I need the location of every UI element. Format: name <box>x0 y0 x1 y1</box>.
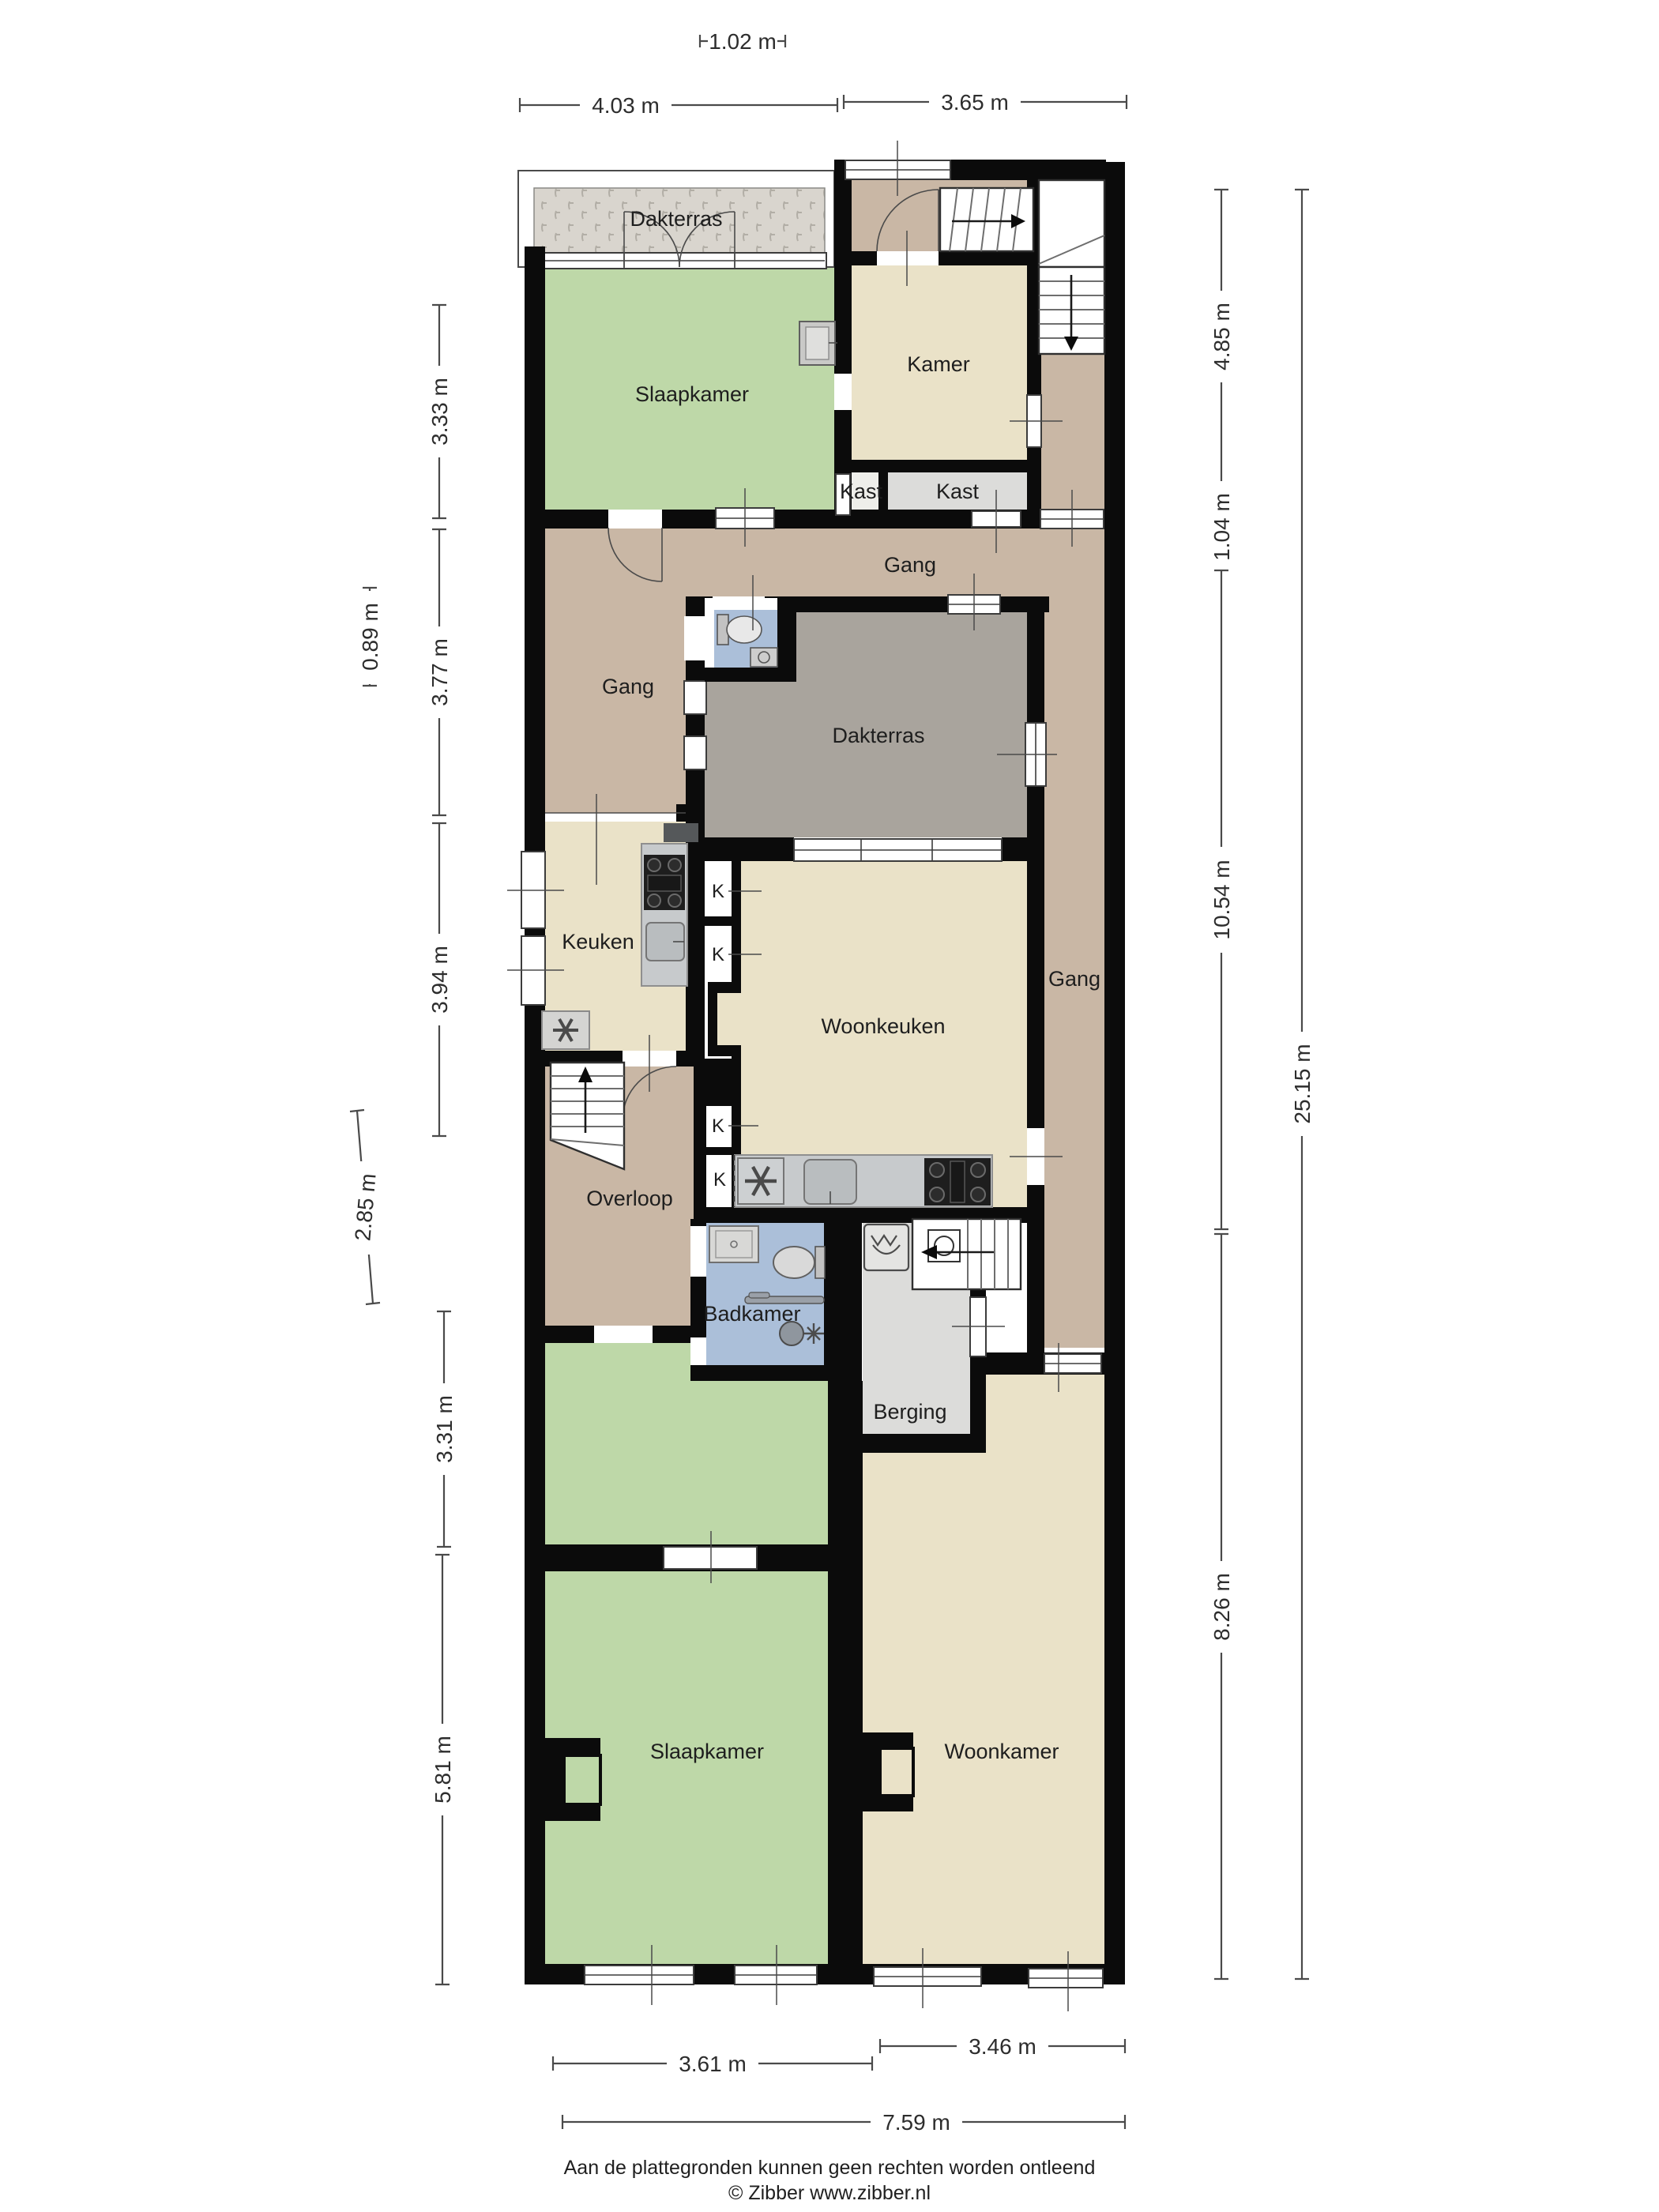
door-green-slaapkamer <box>664 1547 757 1569</box>
wall <box>828 1434 986 1453</box>
burner <box>668 859 681 871</box>
wall <box>694 1059 706 1219</box>
dim-label: 3.31 m <box>432 1395 457 1463</box>
floorplan-svg: Dakterras Slaapkamer Kamer Kast Kast Gan… <box>0 0 1659 2212</box>
closet-label-k2: K <box>712 944 724 965</box>
niche-floor <box>716 991 741 1047</box>
room-gang-right-floor <box>1044 528 1104 1348</box>
footer: Aan de plattegronden kunnen geen rechten… <box>564 2157 1096 2204</box>
towel-radiator-cap <box>749 1292 769 1298</box>
burner <box>648 859 660 871</box>
wall <box>705 1147 739 1155</box>
room-label-kast-large: Kast <box>936 480 980 503</box>
room-gang-top-floor <box>525 528 1104 596</box>
closet-label-k3: K <box>712 1115 724 1137</box>
wall <box>525 246 545 1984</box>
room-gang-right-upper-floor <box>1036 352 1104 510</box>
room-label-gang-left: Gang <box>602 675 654 698</box>
room-label-gang-right: Gang <box>1048 967 1100 991</box>
dim-label: 3.65 m <box>941 90 1009 115</box>
stair-landing <box>1039 180 1104 267</box>
kitchen-cabinet-dark <box>664 823 698 842</box>
dim-label: 1.04 m <box>1209 493 1234 561</box>
dimensions-bottom: 3.61 m 3.46 m 7.59 m <box>553 2033 1125 2135</box>
dim-tick <box>350 1110 364 1112</box>
room-label-woonkamer: Woonkamer <box>944 1740 1059 1763</box>
dimensions-left: 3.33 m 0.89 m 3.77 m 3.94 m 2.85 m 3.31 … <box>350 305 457 1984</box>
room-label-dakterras-mid: Dakterras <box>832 724 924 747</box>
dim-tick <box>366 1303 380 1304</box>
burner <box>930 1163 944 1177</box>
room-gang-left-floor <box>545 596 686 813</box>
burner <box>971 1163 985 1177</box>
room-label-gang-top: Gang <box>884 553 936 577</box>
woonkeuken-niche <box>708 982 741 1056</box>
dim-label: 3.46 m <box>969 2034 1036 2059</box>
toilet-basin <box>750 648 777 667</box>
stove-grill <box>648 875 681 891</box>
wall <box>705 916 739 926</box>
door-kamer-hall <box>877 251 939 265</box>
door-slaapkamer-gang <box>608 510 662 529</box>
room-label-keuken: Keuken <box>562 930 634 954</box>
wall <box>705 837 794 861</box>
wall <box>828 1381 863 1967</box>
wall <box>705 668 796 682</box>
dim-label: 3.61 m <box>679 2052 747 2076</box>
footer-disclaimer: Aan de plattegronden kunnen geen rechten… <box>564 2157 1096 2179</box>
window-gangleft-dakterras-2 <box>684 736 706 769</box>
dim-label: 3.33 m <box>427 378 452 446</box>
dim-label: 3.77 m <box>427 638 452 706</box>
footer-copyright: © Zibber www.zibber.nl <box>728 2182 931 2204</box>
dim-label: 10.54 m <box>1209 860 1234 939</box>
room-label-kast-small: Kast <box>840 480 883 503</box>
door-toilet-gap <box>684 616 706 660</box>
dim-label: 5.81 m <box>431 1736 455 1804</box>
chimney-niche <box>880 1748 913 1796</box>
dim-label: 0.89 m <box>358 603 382 671</box>
room-woonkamer-floor <box>863 1368 1104 1964</box>
room-label-dakterras-top: Dakterras <box>630 207 722 231</box>
burner <box>648 894 660 907</box>
dim-label: 25.15 m <box>1290 1044 1315 1123</box>
wall-cabinet-inner <box>806 327 829 359</box>
chimney-niche <box>564 1755 600 1804</box>
burner <box>668 894 681 907</box>
room-label-slaapkamer-top: Slaapkamer <box>635 382 749 406</box>
dimensions-top: 1.02 m 4.03 m 3.65 m <box>520 28 1127 118</box>
door-overloop-green <box>594 1326 653 1343</box>
wall <box>1104 162 1125 1984</box>
wc-bowl <box>773 1247 814 1278</box>
woonkeuken-fixtures <box>734 1155 992 1207</box>
wall <box>705 1059 739 1106</box>
dim-label: 3.94 m <box>427 946 452 1014</box>
washing-machine <box>864 1224 908 1270</box>
wall <box>824 1219 862 1381</box>
stove-grill <box>950 1161 965 1202</box>
slaapkamer-top-fixtures <box>799 322 837 365</box>
chimney-left <box>545 1738 600 1821</box>
window-gangleft-dakterras-1 <box>684 681 706 714</box>
wc-tank <box>815 1247 825 1278</box>
floorplan-page: Dakterras Slaapkamer Kamer Kast Kast Gan… <box>0 0 1659 2212</box>
dim-label: 7.59 m <box>882 2110 950 2135</box>
door-badkamer <box>690 1226 706 1277</box>
wall <box>690 1365 862 1381</box>
staircase-berging <box>912 1219 1021 1289</box>
door-slaapkamer-kamer <box>834 374 852 410</box>
room-label-badkamer: Badkamer <box>703 1302 800 1326</box>
wall <box>1027 861 1044 1352</box>
wall <box>708 982 717 1056</box>
room-label-berging: Berging <box>873 1400 946 1424</box>
wc-bowl <box>727 616 762 643</box>
chimney-middle <box>863 1732 913 1811</box>
wall <box>1002 837 1027 861</box>
burner <box>930 1187 944 1202</box>
room-label-overloop: Overloop <box>586 1187 673 1210</box>
dim-label: 8.26 m <box>1209 1573 1234 1641</box>
room-label-woonkeuken: Woonkeuken <box>821 1014 945 1038</box>
dimensions-right: 4.85 m 1.04 m 10.54 m 8.26 m 25.15 m <box>1208 190 1315 1979</box>
dim-label: 1.02 m <box>709 29 777 54</box>
dim-label: 4.03 m <box>592 93 660 118</box>
dim-label: 4.85 m <box>1209 303 1234 371</box>
berging-fixtures <box>864 1224 908 1270</box>
burner <box>971 1187 985 1202</box>
closet-label-k4: K <box>713 1169 726 1191</box>
shower <box>709 1226 758 1262</box>
wall <box>852 460 1029 472</box>
room-label-kamer: Kamer <box>907 352 970 376</box>
room-label-slaapkamer-bottom: Slaapkamer <box>650 1740 764 1763</box>
closet-label-k1: K <box>712 881 724 902</box>
